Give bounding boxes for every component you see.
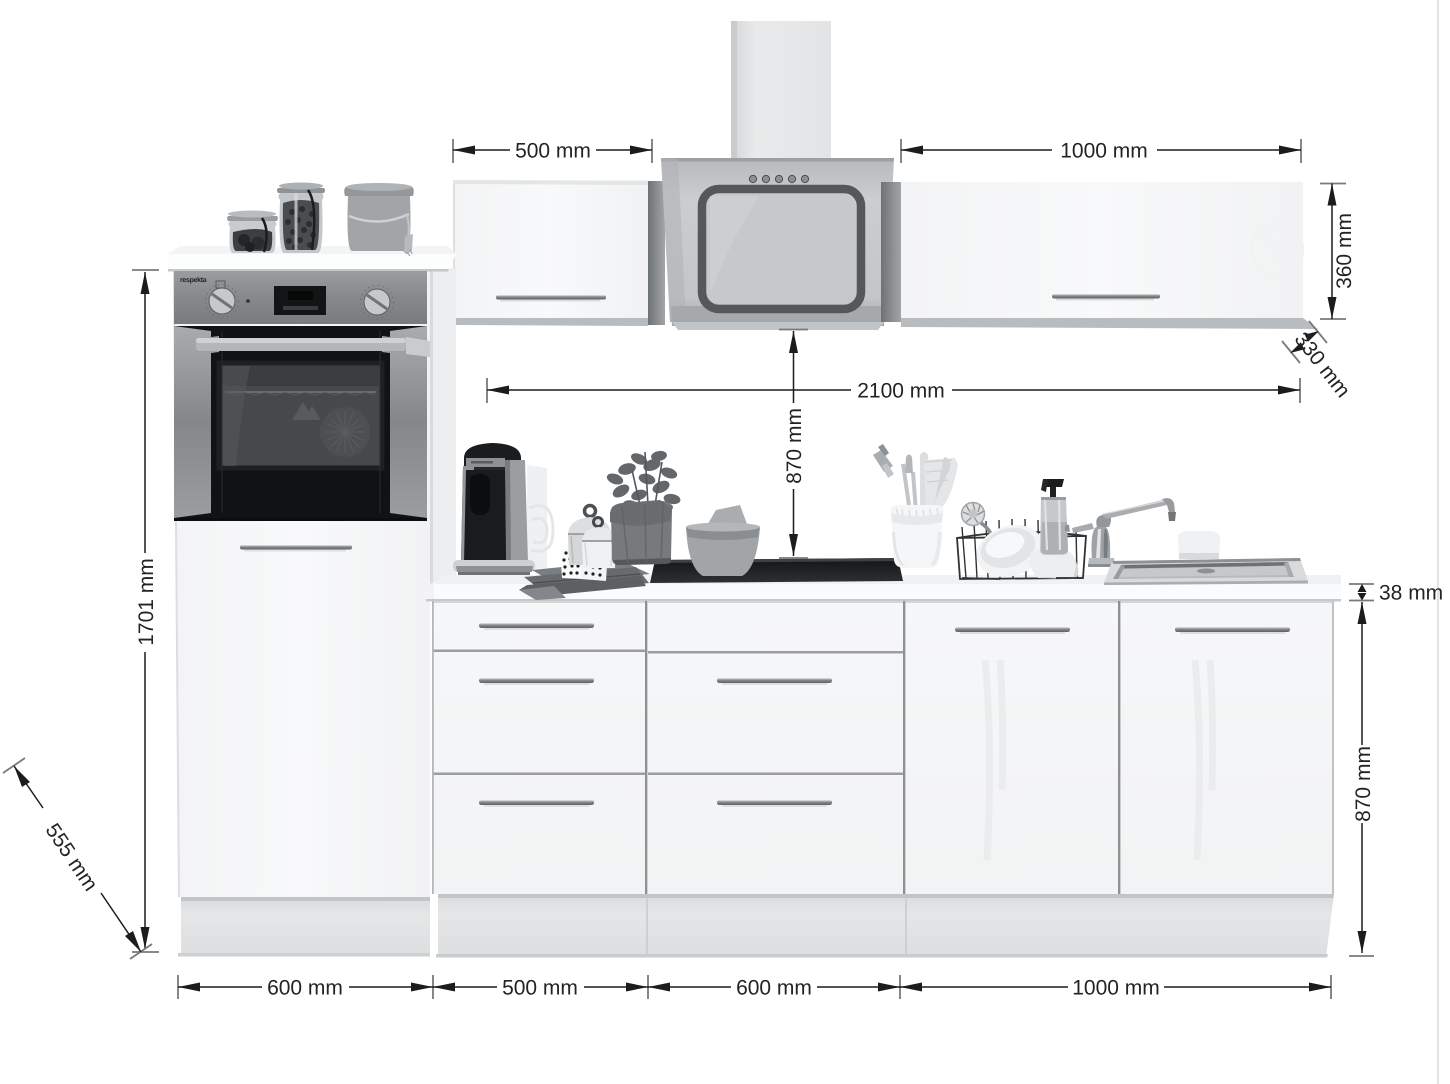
svg-text:1000 mm: 1000 mm <box>1072 977 1160 1000</box>
svg-text:500 mm: 500 mm <box>502 977 578 1000</box>
svg-text:1000 mm: 1000 mm <box>1060 140 1148 163</box>
svg-text:500 mm: 500 mm <box>515 140 591 163</box>
svg-text:360 mm: 360 mm <box>1333 213 1356 289</box>
svg-text:1701 mm: 1701 mm <box>135 558 158 646</box>
svg-text:respekta: respekta <box>180 276 207 284</box>
svg-text:600 mm: 600 mm <box>267 977 343 1000</box>
svg-text:600 mm: 600 mm <box>736 977 812 1000</box>
svg-text:870 mm: 870 mm <box>1352 746 1375 822</box>
svg-text:870 mm: 870 mm <box>783 408 806 484</box>
svg-text:38 mm: 38 mm <box>1379 582 1443 605</box>
svg-text:2100 mm: 2100 mm <box>857 380 945 403</box>
